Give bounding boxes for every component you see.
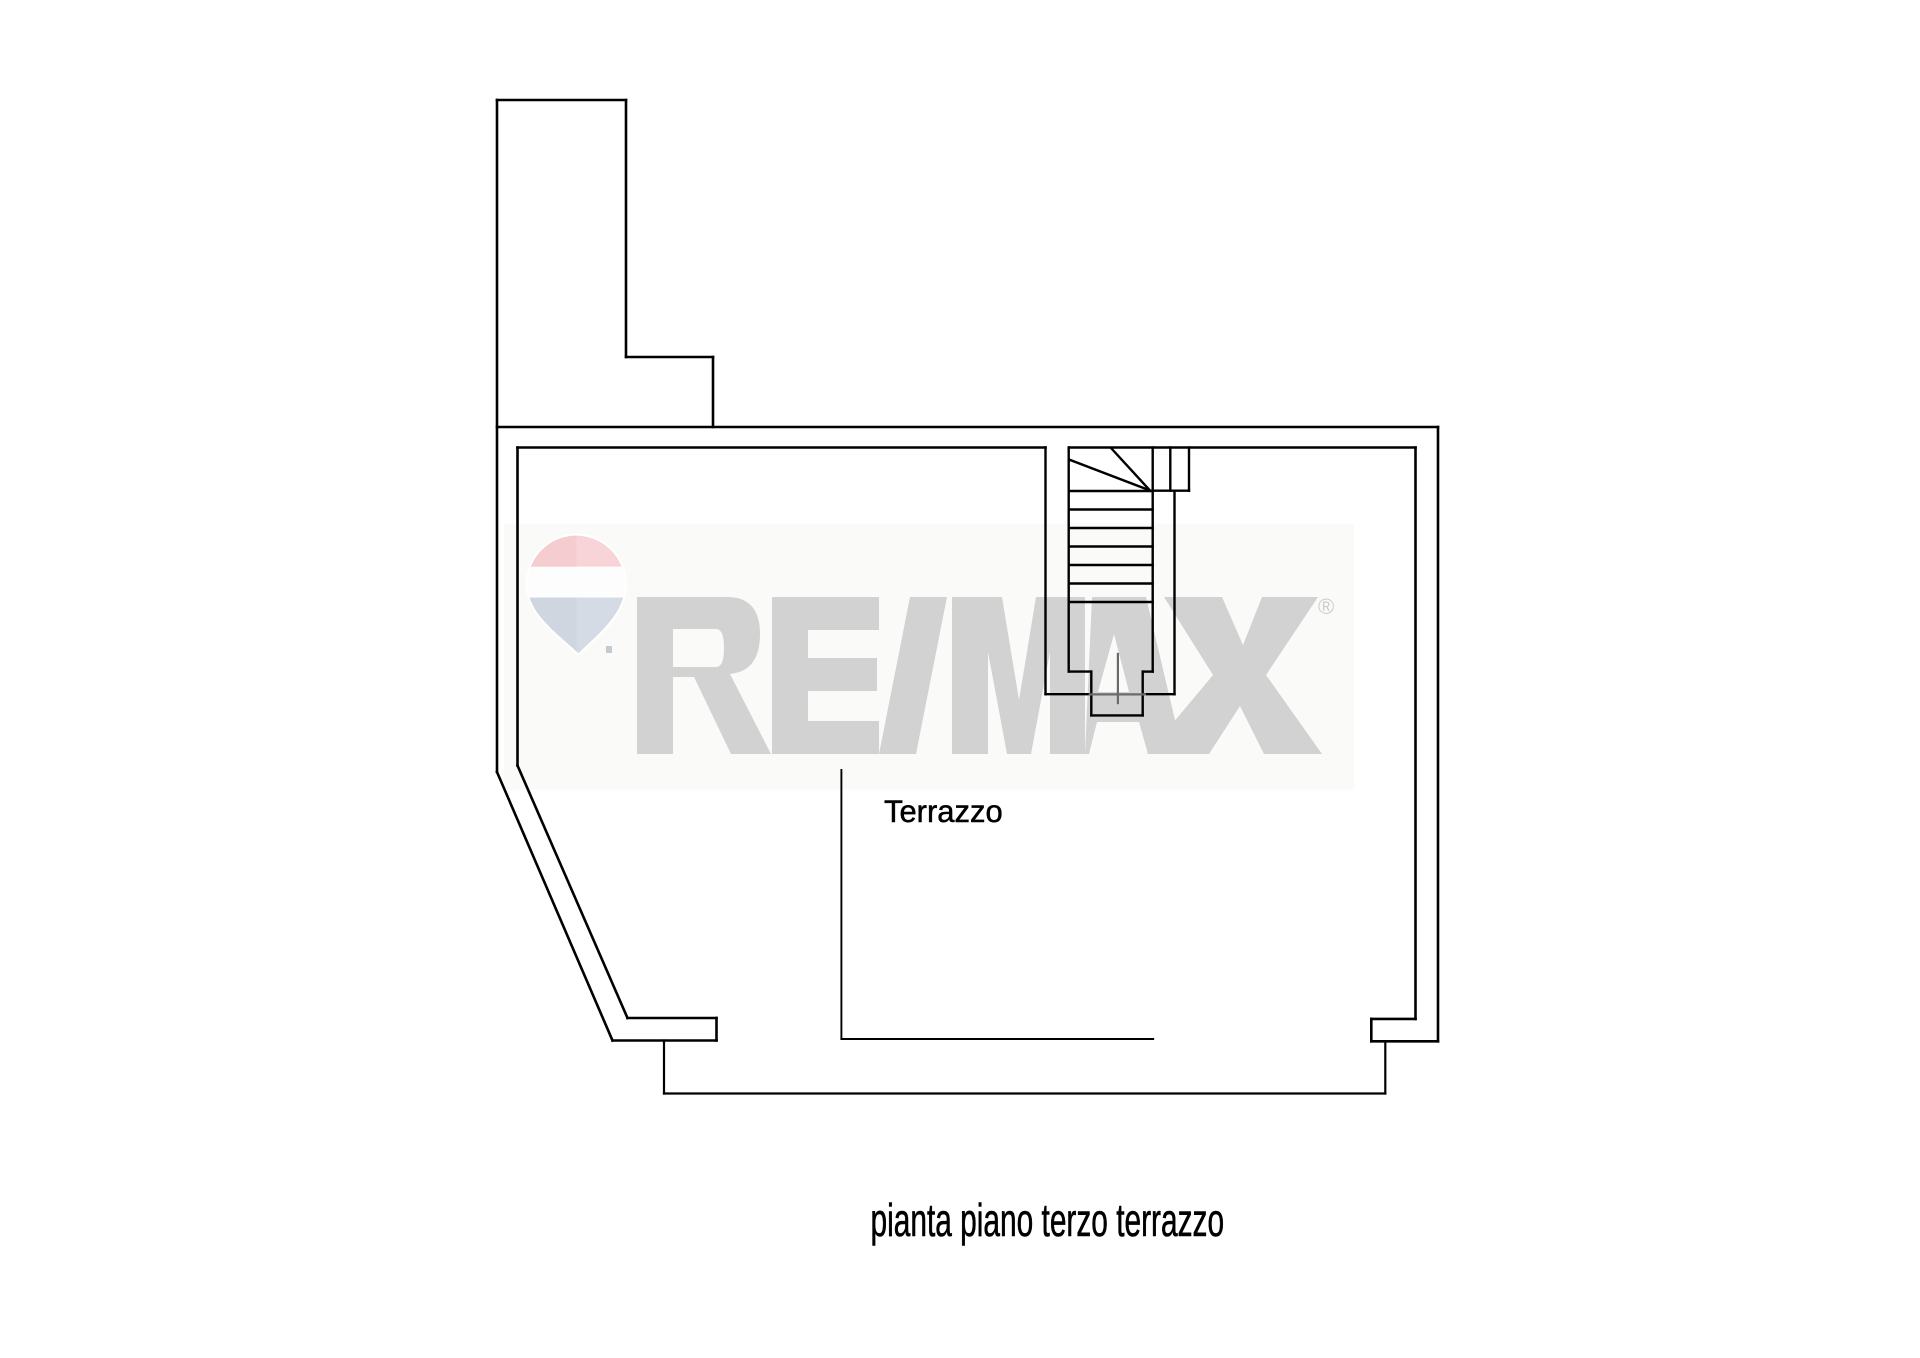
svg-text:®: ® [1318, 594, 1334, 619]
svg-text:Terrazzo: Terrazzo [884, 794, 1003, 829]
svg-text:pianta piano terzo terrazzo: pianta piano terzo terrazzo [871, 1196, 1225, 1247]
